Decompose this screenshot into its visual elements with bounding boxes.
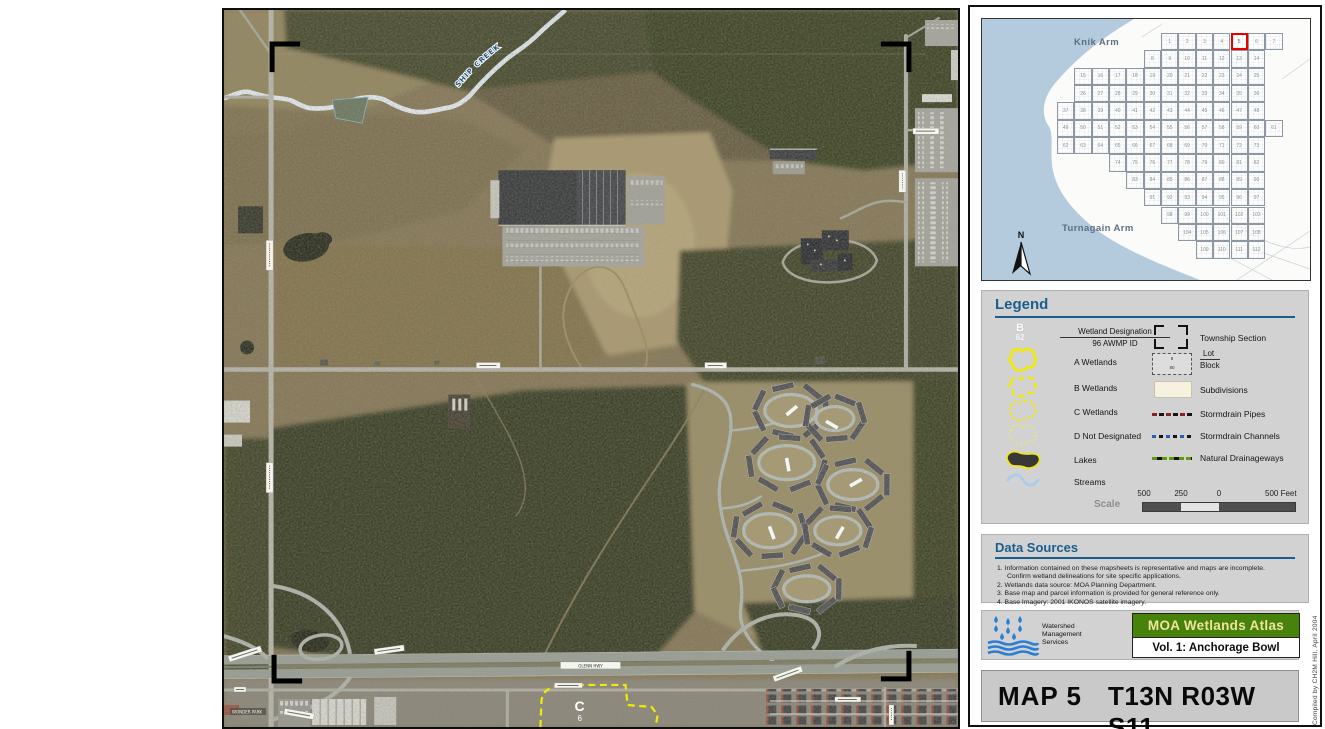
index-grid-cell-66[interactable]: 66 — [1126, 137, 1143, 154]
data-source-note: 4. Base Imagery: 2001 IKONOS satellite i… — [997, 599, 1302, 607]
index-grid-cell-62[interactable]: 62 — [1057, 137, 1074, 154]
index-grid-cell-71[interactable]: 71 — [1213, 137, 1230, 154]
index-grid-cell-31[interactable]: 31 — [1161, 85, 1178, 102]
index-grid-cell-81[interactable]: 81 — [1231, 154, 1248, 171]
data-sources-panel: Data Sources 1. Information contained on… — [981, 534, 1309, 603]
map-number: MAP 5 — [998, 681, 1082, 712]
index-grid-cell-101[interactable]: 101 — [1213, 207, 1230, 224]
scale-bar — [1142, 502, 1296, 512]
index-grid-cell-17[interactable]: 17 — [1109, 68, 1126, 85]
index-grid-cell-34[interactable]: 34 — [1213, 85, 1230, 102]
d-not-designated-label: D Not Designated — [1074, 431, 1141, 441]
index-grid-cell-103[interactable]: 103 — [1248, 207, 1265, 224]
aerial-photo: C 6 SHIP CREEK — [224, 10, 958, 727]
atlas-volume: Vol. 1: Anchorage Bowl — [1152, 642, 1279, 654]
index-grid-cell-55[interactable]: 55 — [1161, 120, 1178, 137]
index-grid-cell-26[interactable]: 26 — [1074, 85, 1091, 102]
index-grid-cell-50[interactable]: 50 — [1074, 120, 1091, 137]
index-grid-cell-87[interactable]: 87 — [1196, 172, 1213, 189]
index-grid-cell-29[interactable]: 29 — [1126, 85, 1143, 102]
index-grid-cell-86[interactable]: 86 — [1178, 172, 1195, 189]
index-grid-cell-15[interactable]: 15 — [1074, 68, 1091, 85]
index-grid-cell-111[interactable]: 111 — [1231, 241, 1248, 258]
aerial-map-panel: C 6 SHIP CREEK — [222, 8, 960, 729]
index-grid-cell-58[interactable]: 58 — [1213, 120, 1230, 137]
index-grid-cell-41[interactable]: 41 — [1126, 102, 1143, 119]
index-grid-cell-27[interactable]: 27 — [1092, 85, 1109, 102]
index-grid-cell-47[interactable]: 47 — [1231, 102, 1248, 119]
index-grid-cell-4[interactable]: 4 — [1213, 33, 1230, 50]
index-grid-cell-9[interactable]: 9 — [1161, 50, 1178, 67]
index-grid-cell-30[interactable]: 30 — [1144, 85, 1161, 102]
streams-swatch — [1004, 469, 1042, 491]
index-grid-cell-28[interactable]: 28 — [1109, 85, 1126, 102]
svg-text:WONDER PARK: WONDER PARK — [232, 709, 262, 714]
index-grid-cell-75[interactable]: 75 — [1126, 154, 1143, 171]
natural-drainageways-label: Natural Drainageways — [1200, 453, 1284, 463]
index-grid-cell-77[interactable]: 77 — [1161, 154, 1178, 171]
index-grid-cell-82[interactable]: 82 — [1248, 154, 1265, 171]
turnagain-arm-label: Turnagain Arm — [1062, 223, 1134, 234]
atlas-volume-banner: Vol. 1: Anchorage Bowl — [1133, 637, 1299, 657]
index-grid-cell-56[interactable]: 56 — [1178, 120, 1195, 137]
watershed-logo — [986, 614, 1040, 658]
index-grid-cell-52[interactable]: 52 — [1109, 120, 1126, 137]
index-grid-cell-13[interactable]: 13 — [1231, 50, 1248, 67]
highway-label: GLENN HWY — [560, 662, 620, 669]
index-grid-cell-39[interactable]: 39 — [1092, 102, 1109, 119]
index-grid-cell-16[interactable]: 16 — [1092, 68, 1109, 85]
index-grid-cell-14[interactable]: 14 — [1248, 50, 1265, 67]
title-strip: Watershed Management Services MOA Wetlan… — [981, 610, 1299, 660]
index-locator-map: Knik Arm Turnagain Arm N 123456789101112… — [981, 18, 1311, 281]
index-grid-cell-104[interactable]: 104 — [1178, 224, 1195, 241]
subdivisions-swatch — [1154, 381, 1192, 398]
data-sources-rule — [995, 557, 1295, 559]
index-grid-cell-53[interactable]: 53 — [1126, 120, 1143, 137]
info-panel: Knik Arm Turnagain Arm N 123456789101112… — [968, 5, 1322, 727]
index-grid-cell-88[interactable]: 88 — [1213, 172, 1230, 189]
stormdrain-channels-label: Stormdrain Channels — [1200, 431, 1280, 441]
index-grid-cell-11[interactable]: 11 — [1196, 50, 1213, 67]
index-grid-cell-6[interactable]: 6 — [1248, 33, 1265, 50]
index-grid-cell-100[interactable]: 100 — [1196, 207, 1213, 224]
wetland-designation-letter: C — [574, 698, 584, 714]
scale-tick-500: 500 — [1137, 489, 1150, 498]
index-grid-cell-74[interactable]: 74 — [1109, 154, 1126, 171]
index-grid-cell-89[interactable]: 89 — [1231, 172, 1248, 189]
index-grid-cell-40[interactable]: 40 — [1109, 102, 1126, 119]
atlas-title-block: MOA Wetlands Atlas Vol. 1: Anchorage Bow… — [1132, 613, 1300, 658]
knik-arm-label: Knik Arm — [1074, 37, 1119, 48]
natural-drainageways-swatch — [1152, 457, 1192, 460]
index-grid-cell-78[interactable]: 78 — [1178, 154, 1195, 171]
data-source-note: 2. Wetlands data source: MOA Planning De… — [997, 582, 1302, 590]
index-grid-cell-102[interactable]: 102 — [1231, 207, 1248, 224]
index-grid-cell-63[interactable]: 63 — [1074, 137, 1091, 154]
township-range-section: T13N R03W S11 — [1108, 681, 1298, 729]
legend-panel: Legend B 62 Wetland Designation 96 AWMP … — [981, 290, 1309, 524]
index-grid-cell-109[interactable]: 109 — [1196, 241, 1213, 258]
index-grid-cell-70[interactable]: 70 — [1196, 137, 1213, 154]
index-grid-cell-32[interactable]: 32 — [1178, 85, 1195, 102]
wetland-designation-sample: B 62 — [1008, 323, 1032, 343]
index-grid-cell-92[interactable]: 92 — [1161, 189, 1178, 206]
index-grid-cell-112[interactable]: 112 — [1248, 241, 1265, 258]
index-grid-cell-69[interactable]: 69 — [1178, 137, 1195, 154]
atlas-title-banner: MOA Wetlands Atlas — [1133, 614, 1299, 637]
index-grid-cell-68[interactable]: 68 — [1161, 137, 1178, 154]
index-grid-cell-35[interactable]: 35 — [1231, 85, 1248, 102]
streams-label: Streams — [1074, 477, 1106, 487]
index-grid-cell-25[interactable]: 25 — [1248, 68, 1265, 85]
c-wetlands-label: C Wetlands — [1074, 407, 1118, 417]
index-grid-cell-99[interactable]: 99 — [1178, 207, 1195, 224]
index-grid-cell-54[interactable]: 54 — [1144, 120, 1161, 137]
index-grid-cell-1[interactable]: 1 — [1161, 33, 1178, 50]
index-grid-cell-46[interactable]: 46 — [1213, 102, 1230, 119]
index-grid-cell-80[interactable]: 80 — [1213, 154, 1230, 171]
subdivisions-label: Subdivisions — [1200, 385, 1248, 395]
index-grid-cell-18[interactable]: 18 — [1126, 68, 1143, 85]
index-grid-cell-2[interactable]: 2 — [1178, 33, 1195, 50]
data-source-note: 1. Information contained on these mapshe… — [997, 565, 1302, 573]
index-grid-cell-23[interactable]: 23 — [1213, 68, 1230, 85]
township-section-label: Township Section — [1200, 333, 1266, 343]
scale-tick-250: 250 — [1174, 489, 1187, 498]
index-grid-cell-33[interactable]: 33 — [1196, 85, 1213, 102]
b-wetlands-label: B Wetlands — [1074, 383, 1117, 393]
north-arrow-glyph — [1008, 240, 1034, 276]
map-number-panel: MAP 5 T13N R03W S11 — [981, 670, 1299, 722]
index-grid-cell-36[interactable]: 36 — [1248, 85, 1265, 102]
a-wetlands-label: A Wetlands — [1074, 357, 1117, 367]
index-grid-cell-21[interactable]: 21 — [1178, 68, 1195, 85]
index-grid-cell-98[interactable]: 98 — [1161, 207, 1178, 224]
legend-rule — [995, 316, 1295, 318]
index-grid-cell-64[interactable]: 64 — [1092, 137, 1109, 154]
index-grid-cell-59[interactable]: 59 — [1231, 120, 1248, 137]
north-label: N — [1006, 231, 1036, 240]
stormdrain-channels-swatch — [1152, 435, 1192, 438]
data-source-note: 3. Base map and parcel information is pr… — [997, 590, 1302, 598]
org-name: Watershed Management Services — [1042, 623, 1082, 647]
index-grid-cell-43[interactable]: 43 — [1161, 102, 1178, 119]
index-grid-cell-93[interactable]: 93 — [1178, 189, 1195, 206]
index-grid-cell-85[interactable]: 85 — [1161, 172, 1178, 189]
lot-block-swatch: 8 80 — [1152, 353, 1192, 375]
index-grid-cell-45[interactable]: 45 — [1196, 102, 1213, 119]
index-grid-cell-73[interactable]: 73 — [1248, 137, 1265, 154]
index-grid-cell-8[interactable]: 8 — [1144, 50, 1161, 67]
compiler-credit: Compiled by CH2M Hill, April 2004 — [1312, 611, 1319, 725]
index-grid-cell-48[interactable]: 48 — [1248, 102, 1265, 119]
svg-text:GLENN HWY: GLENN HWY — [578, 663, 603, 668]
index-grid-cell-19[interactable]: 19 — [1144, 68, 1161, 85]
data-sources-title: Data Sources — [995, 540, 1078, 555]
atlas-title: MOA Wetlands Atlas — [1148, 618, 1284, 633]
lot-block-label: Lot Block — [1200, 349, 1220, 370]
data-source-note: Confirm wetland delineations for site sp… — [997, 573, 1302, 581]
index-grid-cell-49[interactable]: 49 — [1057, 120, 1074, 137]
index-grid-cell-7[interactable]: 7 — [1265, 33, 1282, 50]
index-grid-cell-76[interactable]: 76 — [1144, 154, 1161, 171]
index-grid-cell-5[interactable]: 5 — [1231, 33, 1248, 50]
lakes-label: Lakes — [1074, 455, 1097, 465]
index-grid-cell-83[interactable]: 83 — [1126, 172, 1143, 189]
scale-tick-0: 0 — [1217, 489, 1221, 498]
index-grid-cell-108[interactable]: 108 — [1248, 224, 1265, 241]
index-grid-cell-107[interactable]: 107 — [1231, 224, 1248, 241]
data-sources-notes: 1. Information contained on these mapshe… — [997, 565, 1302, 607]
index-grid-cell-84[interactable]: 84 — [1144, 172, 1161, 189]
index-grid-cell-20[interactable]: 20 — [1161, 68, 1178, 85]
index-grid-cell-96[interactable]: 96 — [1231, 189, 1248, 206]
township-section-swatch — [1154, 325, 1188, 349]
north-arrow: N — [1006, 231, 1036, 277]
index-grid-cell-110[interactable]: 110 — [1213, 241, 1230, 258]
scale-label: Scale — [1094, 499, 1120, 510]
index-grid-cell-42[interactable]: 42 — [1144, 102, 1161, 119]
index-grid-cell-24[interactable]: 24 — [1231, 68, 1248, 85]
index-grid-cell-90[interactable]: 90 — [1248, 172, 1265, 189]
index-grid-cell-97[interactable]: 97 — [1248, 189, 1265, 206]
wetland-awmp-id: 6 — [577, 714, 582, 723]
index-grid-cell-79[interactable]: 79 — [1196, 154, 1213, 171]
index-grid-cell-95[interactable]: 95 — [1213, 189, 1230, 206]
index-grid-cell-94[interactable]: 94 — [1196, 189, 1213, 206]
stormdrain-pipes-swatch — [1152, 413, 1192, 416]
atlas-sheet: C 6 SHIP CREEK — [0, 0, 1325, 729]
photo-grain — [224, 10, 958, 727]
index-grid-cell-37[interactable]: 37 — [1057, 102, 1074, 119]
index-grid-cell-10[interactable]: 10 — [1178, 50, 1195, 67]
index-grid-cell-22[interactable]: 22 — [1196, 68, 1213, 85]
stormdrain-pipes-label: Stormdrain Pipes — [1200, 409, 1265, 419]
legend-title: Legend — [995, 296, 1048, 313]
index-grid-cell-65[interactable]: 65 — [1109, 137, 1126, 154]
index-grid-cell-44[interactable]: 44 — [1178, 102, 1195, 119]
index-grid-cell-91[interactable]: 91 — [1144, 189, 1161, 206]
index-grid-cell-38[interactable]: 38 — [1074, 102, 1091, 119]
index-grid-cell-57[interactable]: 57 — [1196, 120, 1213, 137]
scale-tick-500feet: 500 Feet — [1265, 489, 1297, 498]
index-grid-cell-106[interactable]: 106 — [1213, 224, 1230, 241]
index-grid-cell-12[interactable]: 12 — [1213, 50, 1230, 67]
park-label: WONDER PARK — [230, 708, 266, 715]
index-grid-cell-51[interactable]: 51 — [1092, 120, 1109, 137]
index-grid-cell-61[interactable]: 61 — [1265, 120, 1282, 137]
index-grid-cell-67[interactable]: 67 — [1144, 137, 1161, 154]
index-grid-cell-72[interactable]: 72 — [1231, 137, 1248, 154]
index-grid-cell-3[interactable]: 3 — [1196, 33, 1213, 50]
index-grid-cell-60[interactable]: 60 — [1248, 120, 1265, 137]
index-grid-cell-105[interactable]: 105 — [1196, 224, 1213, 241]
